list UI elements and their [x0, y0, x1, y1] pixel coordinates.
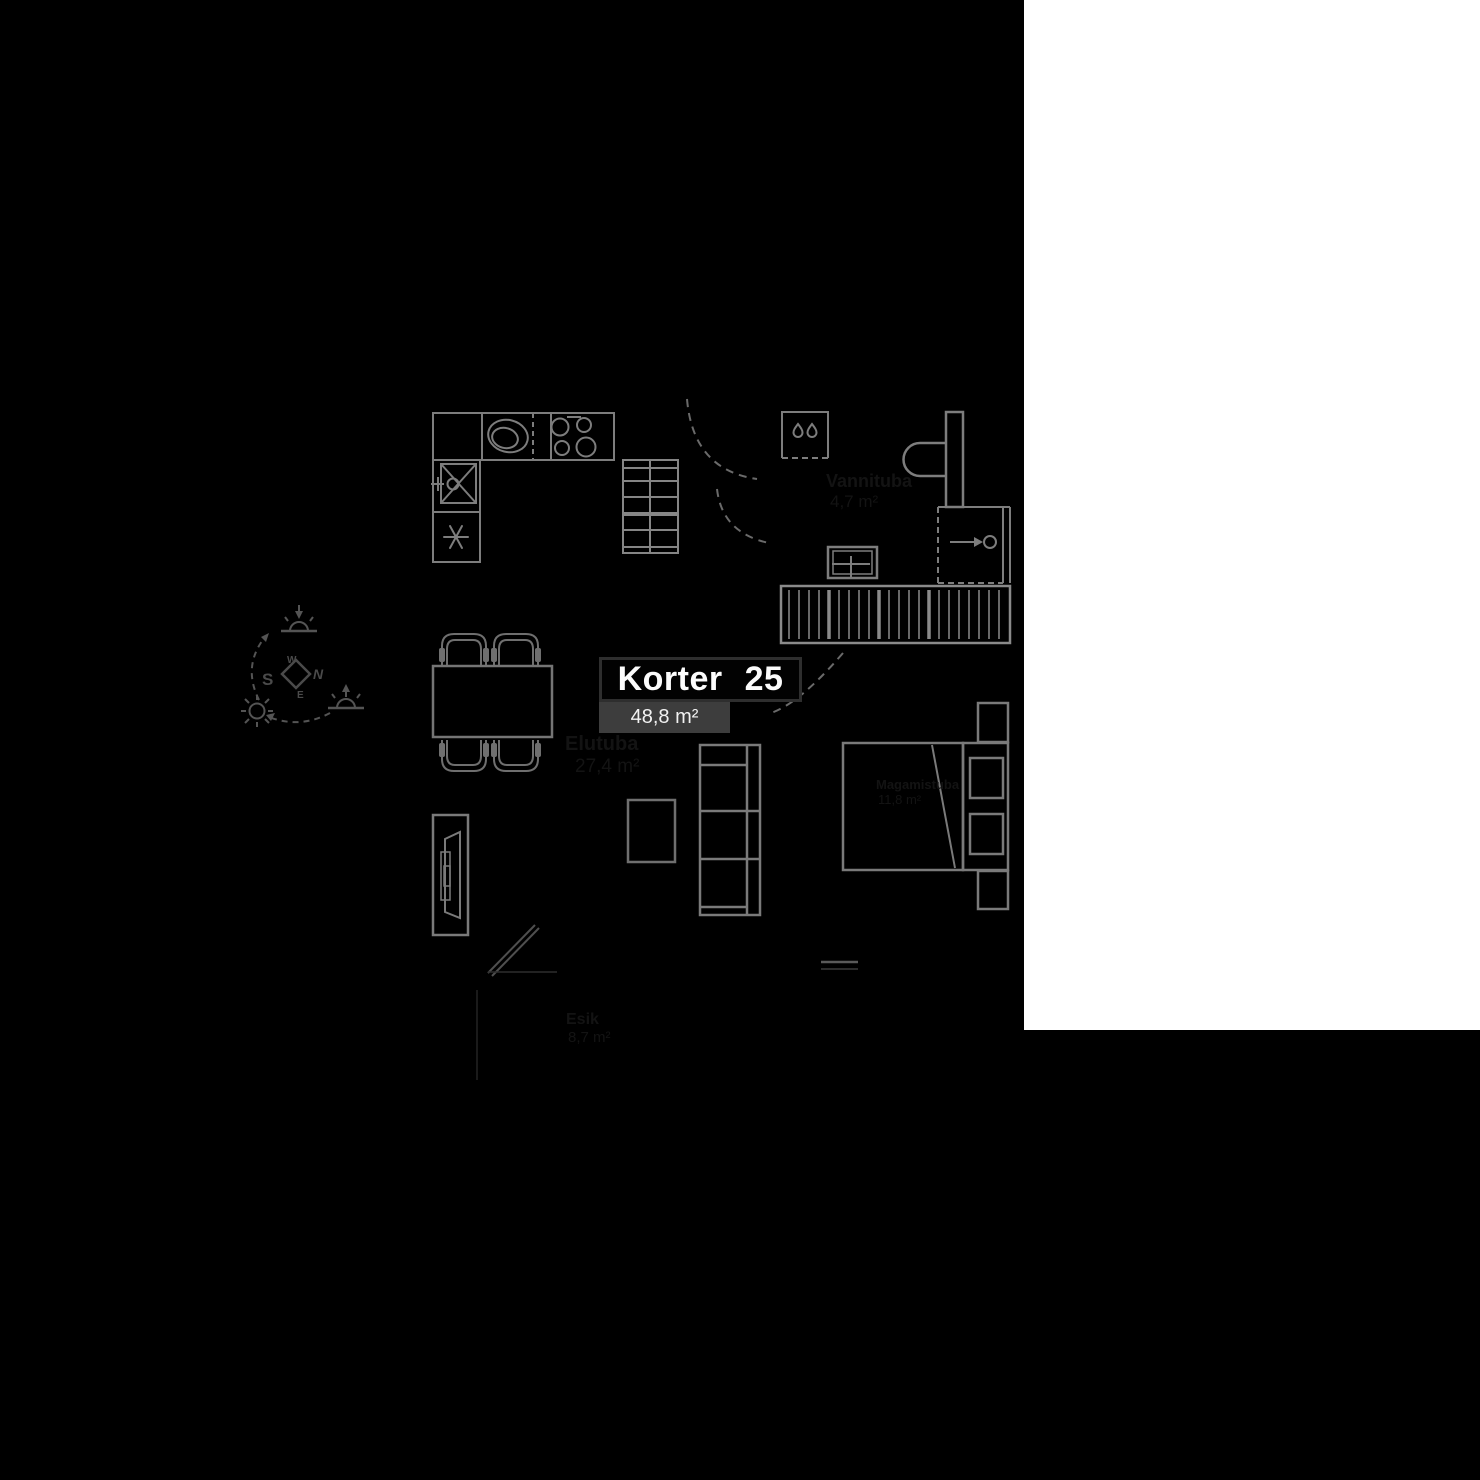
dining-chair	[439, 740, 489, 771]
compass-s: S	[262, 670, 273, 689]
compass-e: E	[297, 690, 304, 701]
nightstand	[978, 871, 1008, 909]
room-name: Vannituba	[826, 471, 912, 492]
compass-n: N	[313, 666, 324, 682]
fridge-snowflake-icon	[444, 526, 468, 548]
floor-plan-drawing: W N S E	[0, 0, 1480, 1480]
unit-area-badge: 48,8 m²	[599, 702, 730, 733]
sofa	[700, 745, 760, 915]
coffee-table	[628, 800, 675, 862]
room-label-hallway: Esik 8,7 m²	[566, 1011, 611, 1047]
dining-chair	[491, 634, 541, 665]
kitchen-counter	[433, 413, 614, 562]
stove-burners	[552, 418, 596, 457]
room-name: Elutuba	[565, 733, 639, 756]
floor-plan-canvas: W N S E	[0, 0, 1480, 1480]
towel-ladder	[623, 460, 678, 553]
room-area: 8,7 m²	[568, 1029, 611, 1046]
entrance-door	[477, 925, 557, 1080]
dining-table	[433, 666, 552, 737]
room-area: 27,4 m²	[575, 756, 639, 778]
kitchen-sink	[485, 416, 532, 457]
toilet	[904, 412, 964, 507]
prep-sink	[431, 464, 476, 503]
washbasin	[828, 547, 877, 578]
dining-chair	[439, 634, 489, 665]
unit-label: Korter 25	[599, 657, 802, 702]
sunrise-icon	[328, 684, 364, 708]
room-area: 4,7 m²	[830, 492, 912, 512]
sunset-icon	[281, 605, 317, 631]
room-label-living: Elutuba 27,4 m²	[565, 733, 639, 778]
dining-chair	[491, 740, 541, 771]
pillow	[970, 814, 1003, 854]
pillow	[970, 758, 1003, 798]
sun-icon	[241, 695, 273, 727]
room-area: 11,8 m²	[878, 793, 959, 808]
compass-rose: W N S E	[262, 655, 324, 701]
room-name: Magamistuba	[876, 778, 959, 793]
compass-w: W	[287, 655, 297, 666]
nightstand	[978, 703, 1008, 742]
sun-path-diagram: W N S E	[241, 605, 364, 727]
shower	[782, 412, 828, 458]
door-threshold	[821, 962, 858, 969]
tv-stand	[433, 815, 468, 935]
room-name: Esik	[566, 1011, 611, 1029]
room-label-bathroom: Vannituba 4,7 m²	[826, 471, 912, 511]
water-drop-icon	[808, 424, 817, 437]
shower-enclosure	[938, 507, 1010, 583]
wardrobe	[781, 586, 1010, 643]
water-drop-icon	[794, 424, 803, 437]
room-label-bedroom: Magamistuba 11,8 m²	[876, 778, 959, 808]
